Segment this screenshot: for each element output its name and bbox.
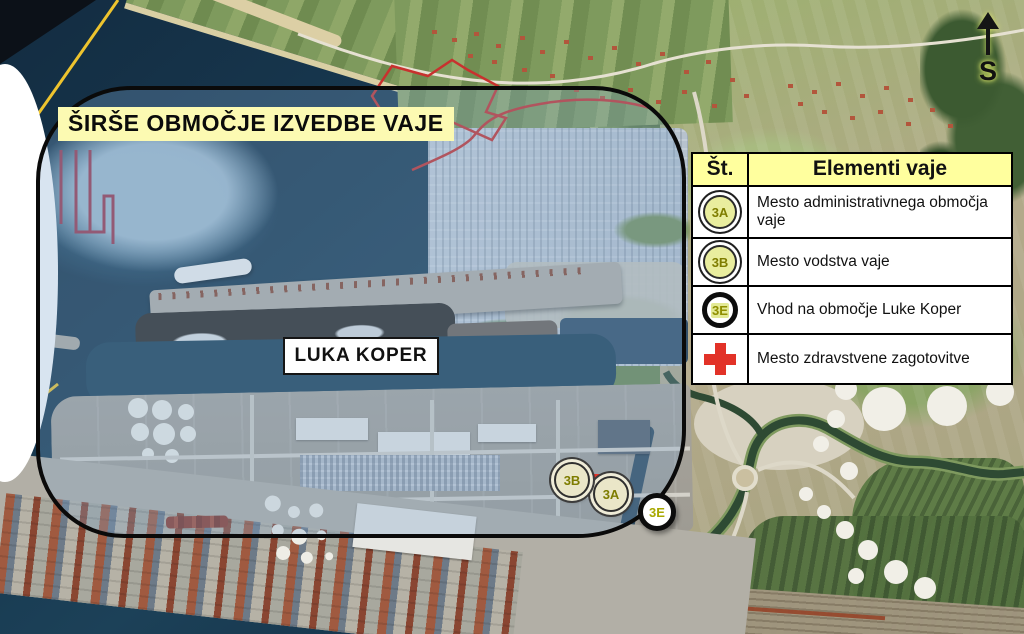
page-title-text: ŠIRŠE OBMOČJE IZVEDBE VAJE — [68, 110, 444, 136]
legend-label: Vhod na območje Luke Koper — [749, 287, 1011, 333]
legend-header-number: Št. — [693, 154, 749, 185]
double-ring-circle-icon: 3A — [703, 195, 737, 229]
legend-row-3e: 3E Vhod na območje Luke Koper — [693, 285, 1011, 333]
map-marker-3e: 3E — [638, 493, 676, 531]
legend-label: Mesto vodstva vaje — [749, 239, 1011, 285]
legend-row-medical: Mesto zdravstvene zagotovitve — [693, 333, 1011, 383]
double-ring-circle-icon: 3B — [703, 245, 737, 279]
thick-ring-circle-icon: 3E — [702, 292, 738, 328]
exercise-area-map: ŠIRŠE OBMOČJE IZVEDBE VAJE LUKA KOPER 3A… — [0, 0, 1024, 634]
north-label: S — [964, 56, 1012, 87]
legend-row-3b: 3B Mesto vodstva vaje — [693, 237, 1011, 285]
page-title: ŠIRŠE OBMOČJE IZVEDBE VAJE — [58, 107, 454, 141]
legend-label: Mesto zdravstvene zagotovitve — [749, 335, 1011, 383]
red-cross-icon — [704, 343, 736, 375]
map-marker-3b: 3B — [554, 462, 590, 498]
north-arrow: S — [964, 12, 1012, 92]
legend-header-elements: Elementi vaje — [749, 154, 1011, 185]
port-name-label: LUKA KOPER — [283, 337, 439, 375]
north-arrow-icon — [964, 12, 1012, 58]
legend-label: Mesto administrativnega območja vaje — [749, 187, 1011, 237]
legend-header: Št. Elementi vaje — [693, 154, 1011, 185]
map-marker-3a: 3A — [593, 476, 629, 512]
legend-table: Št. Elementi vaje 3A Mesto administrativ… — [691, 152, 1013, 385]
exercise-area-boundary — [36, 86, 686, 538]
legend-row-3a: 3A Mesto administrativnega območja vaje — [693, 185, 1011, 237]
